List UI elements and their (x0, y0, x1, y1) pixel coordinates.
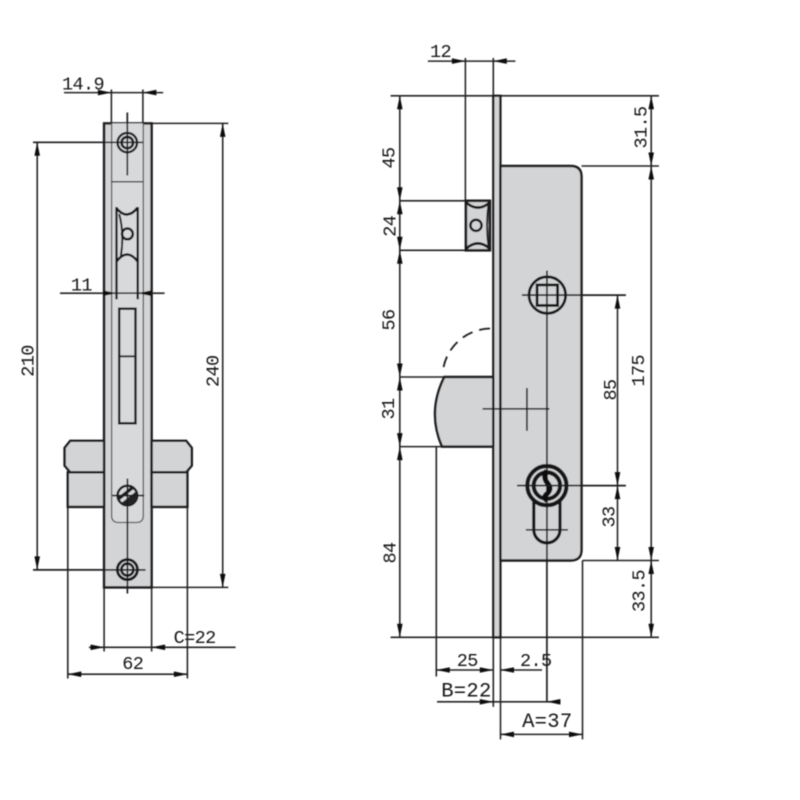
svg-text:56: 56 (380, 309, 401, 330)
svg-text:210: 210 (19, 345, 40, 377)
svg-text:12: 12 (430, 42, 451, 63)
svg-text:31.5: 31.5 (631, 106, 652, 148)
svg-text:C=22: C=22 (174, 628, 216, 649)
svg-text:24: 24 (381, 215, 402, 237)
svg-text:2.5: 2.5 (520, 651, 552, 672)
svg-text:240: 240 (204, 355, 225, 387)
svg-text:175: 175 (629, 355, 650, 387)
svg-text:31: 31 (379, 398, 400, 420)
svg-text:33: 33 (600, 506, 621, 527)
svg-text:B=22: B=22 (441, 681, 491, 704)
svg-text:45: 45 (379, 147, 400, 168)
svg-text:85: 85 (601, 379, 622, 400)
svg-text:A=37: A=37 (522, 711, 572, 734)
svg-text:84: 84 (381, 542, 402, 564)
svg-text:33.5: 33.5 (630, 570, 651, 612)
svg-text:62: 62 (122, 654, 143, 675)
svg-text:25: 25 (457, 651, 478, 672)
